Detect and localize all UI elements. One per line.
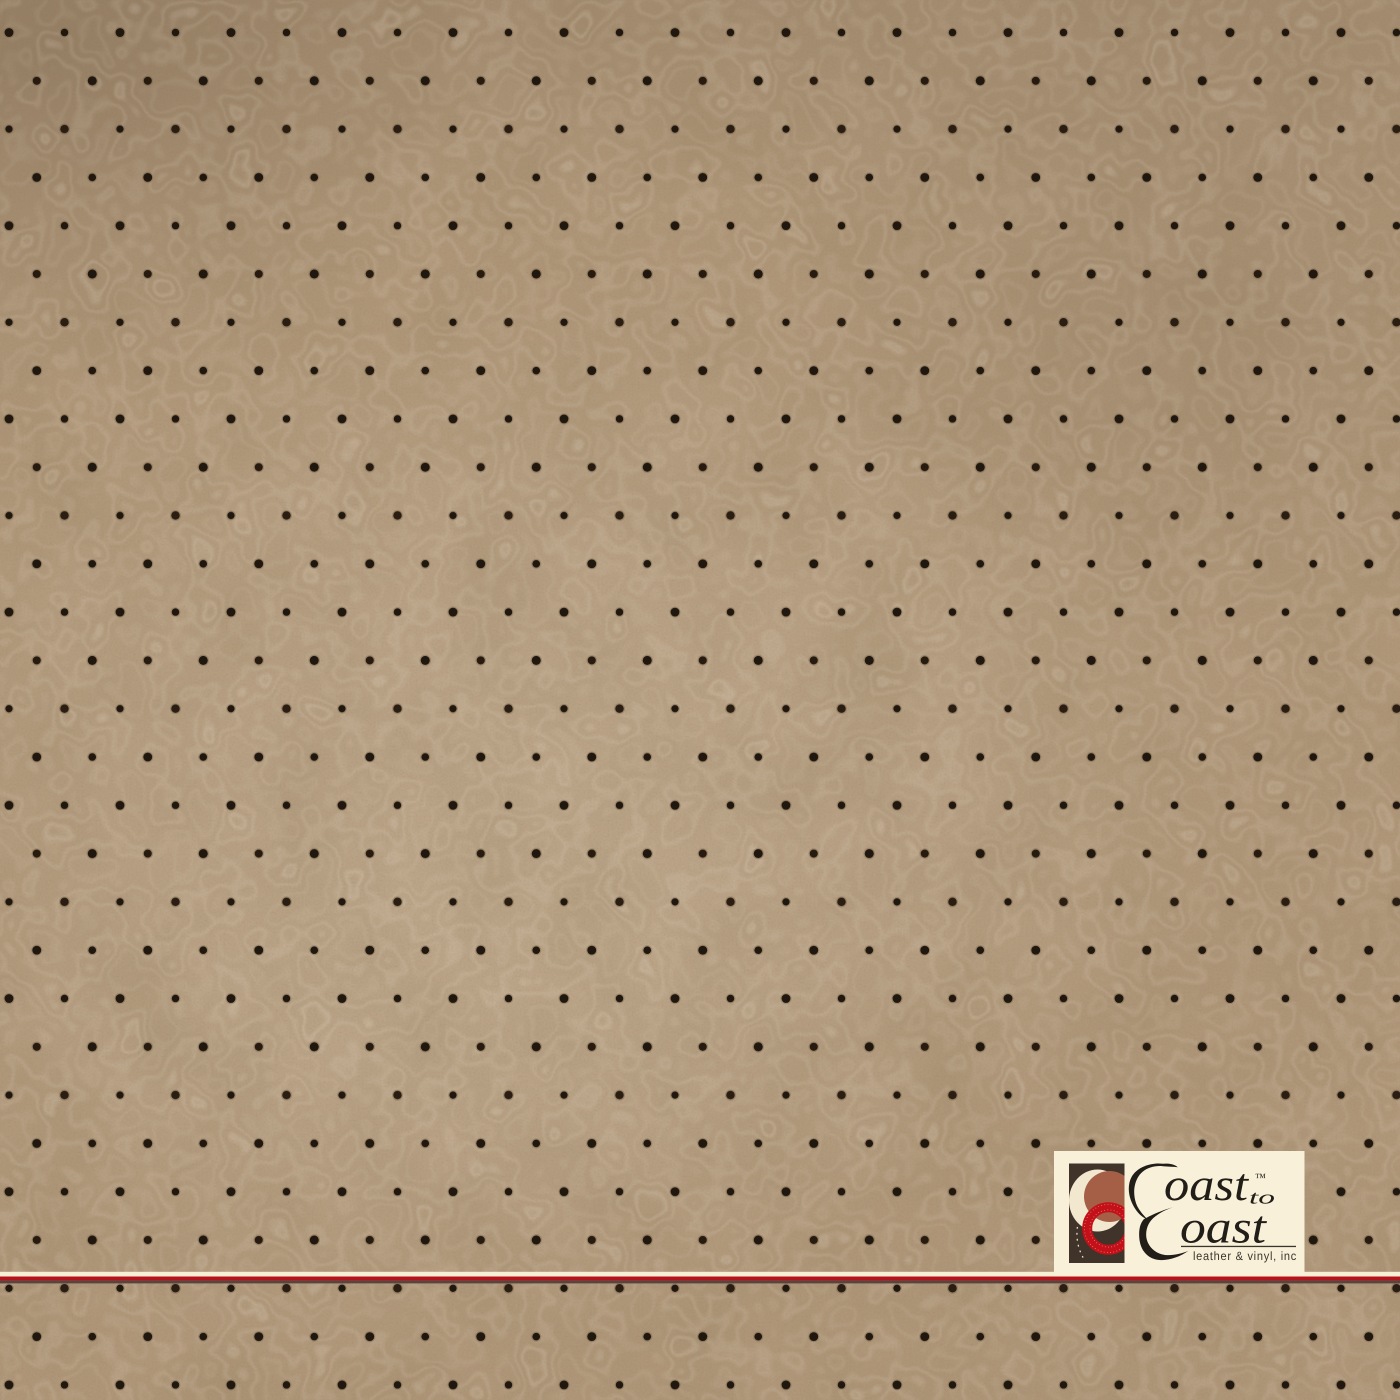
svg-text:leather & vinyl, inc: leather & vinyl, inc (1193, 1249, 1297, 1263)
svg-text:™: ™ (1255, 1172, 1266, 1184)
